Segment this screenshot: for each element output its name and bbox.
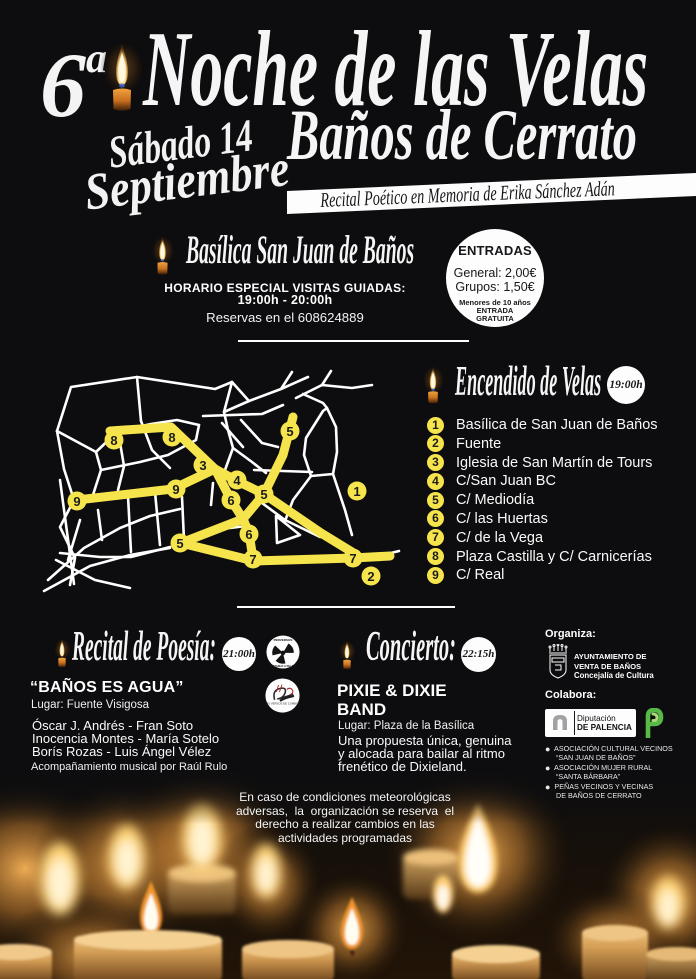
svg-text:3: 3	[199, 458, 206, 473]
svg-text:5: 5	[286, 424, 293, 439]
svg-text:LOS VERSOS DE CUMBITO: LOS VERSOS DE CUMBITO	[265, 701, 300, 705]
svg-text:8: 8	[110, 433, 117, 448]
svg-text:8: 8	[168, 430, 175, 445]
svg-text:5: 5	[260, 487, 267, 502]
svg-text:9: 9	[172, 482, 179, 497]
svg-text:6: 6	[227, 493, 234, 508]
svg-text:5: 5	[176, 536, 183, 551]
svg-text:4: 4	[233, 473, 241, 488]
svg-text:9: 9	[73, 494, 80, 509]
svg-text:6: 6	[245, 527, 252, 542]
svg-text:2: 2	[367, 569, 374, 584]
svg-text:7: 7	[349, 551, 356, 566]
svg-text:1: 1	[353, 484, 360, 499]
svg-text:7: 7	[249, 552, 256, 567]
svg-text:PERVERSOS: PERVERSOS	[274, 638, 293, 642]
svg-text:METANLO A PALOS: METANLO A PALOS	[270, 664, 295, 668]
